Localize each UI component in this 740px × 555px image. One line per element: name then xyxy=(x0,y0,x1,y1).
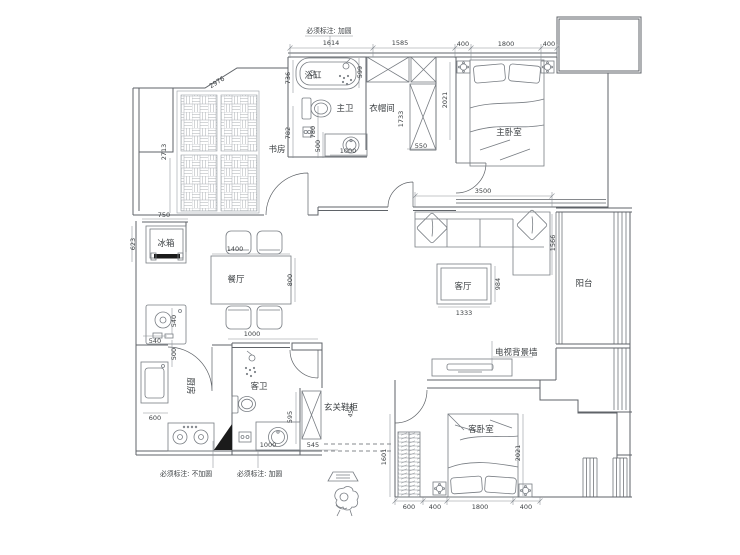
dim-1601: 1601 xyxy=(380,449,388,466)
ceiling-symbol-2 xyxy=(541,61,554,73)
label-living: 客厅 xyxy=(454,281,472,292)
note-bottom-left: 必须标注: 不加圆 xyxy=(160,469,212,478)
dim-1733: 1733 xyxy=(397,111,405,128)
dim-599: 599 xyxy=(356,66,364,78)
speckle-topright xyxy=(559,19,639,71)
dim-1000-b: 1000 xyxy=(244,330,261,338)
dim-984: 984 xyxy=(494,278,502,290)
dining-table xyxy=(211,231,291,329)
door-study xyxy=(266,173,308,215)
floor-plan-page: 1614 1585 400 1800 400 736 599 782 780 5… xyxy=(0,0,740,555)
dim-1800-b: 1800 xyxy=(472,503,489,511)
toilet-master xyxy=(302,98,331,119)
wall-guestbath-top xyxy=(232,343,290,348)
label-dining: 餐厅 xyxy=(227,275,245,285)
label-guest-bedroom: 客卧室 xyxy=(468,424,494,435)
master-bed xyxy=(470,60,544,166)
dim-550: 550 xyxy=(415,142,427,150)
shoe-cabinet xyxy=(302,391,321,439)
label-entry-cabinet: 玄关鞋柜 xyxy=(324,402,359,413)
dim-1566: 1566 xyxy=(549,235,557,252)
dim-400-b: 400 xyxy=(543,40,555,48)
dim-782: 782 xyxy=(284,127,292,139)
dim-540-a: 540 xyxy=(149,337,161,345)
stove xyxy=(168,423,214,451)
dim-623: 623 xyxy=(129,238,137,250)
dim-1800-a: 1800 xyxy=(498,40,515,48)
window-living-balcony xyxy=(556,212,562,344)
window-bay-2 xyxy=(613,458,627,497)
dim-3500: 3500 xyxy=(475,187,492,195)
sofa xyxy=(415,209,550,275)
door-guestbath xyxy=(290,350,318,378)
label-guest-bath: 客卫 xyxy=(250,381,268,392)
dim-545: 545 xyxy=(307,441,319,449)
dim-1333: 1333 xyxy=(456,309,473,317)
label-master-bedroom: 主卧室 xyxy=(496,127,522,138)
dim-1000-a: 1000 xyxy=(340,147,357,155)
dim-2021-b: 2021 xyxy=(514,445,522,462)
study-tiles xyxy=(177,91,259,213)
ceiling-symbol-1 xyxy=(457,61,470,73)
dim-540-b: 540 xyxy=(170,315,178,327)
ceiling-symbol-3 xyxy=(433,482,446,495)
label-fridge: 冰箱 xyxy=(157,238,175,249)
label-bathtub: 浴缸 xyxy=(304,70,322,81)
wall-tv xyxy=(427,380,540,388)
dim-1000-c: 1000 xyxy=(260,441,277,449)
wall-block xyxy=(292,343,322,350)
label-study: 书房 xyxy=(268,144,285,155)
dim-500-a: 500 xyxy=(314,140,322,152)
dim-595: 595 xyxy=(286,411,294,423)
label-master-bath: 主卫 xyxy=(336,103,354,114)
speckle-topleft xyxy=(139,88,173,152)
dim-2713: 2713 xyxy=(160,144,168,161)
corner-block-topright xyxy=(557,17,641,73)
label-tv-wall: 电视背景墙 xyxy=(495,347,538,358)
dim-750: 750 xyxy=(158,211,170,219)
dim-736: 736 xyxy=(284,72,292,84)
wall-top xyxy=(288,53,557,57)
shower-head-guest xyxy=(245,351,255,377)
floor-plan: 1614 1585 400 1800 400 736 599 782 780 5… xyxy=(0,0,740,555)
toilet-guest xyxy=(232,396,256,413)
label-balcony: 阳台 xyxy=(575,278,592,289)
door-hallway xyxy=(388,182,413,207)
note-bottom-mid: 必须标注: 加圆 xyxy=(237,469,282,478)
dim-1585: 1585 xyxy=(392,39,409,47)
entrance-sketch xyxy=(328,472,358,516)
room-labels: 书房 浴缸 主卫 衣帽间 主卧室 餐厅 客厅 阳台 厨房 客卫 玄关鞋柜 客卧室… xyxy=(157,26,592,478)
note-top: 必须标注: 加圆 xyxy=(306,26,351,35)
dim-800: 800 xyxy=(286,274,294,286)
walls xyxy=(133,17,641,497)
wall-bottom-kitchen xyxy=(136,451,322,455)
dim-780: 780 xyxy=(309,126,317,138)
dim-2021-a: 2021 xyxy=(441,92,449,109)
wall-study-left xyxy=(133,88,139,215)
kitchen-sink xyxy=(141,362,168,403)
tv-cabinet xyxy=(432,359,512,376)
dim-400-a: 400 xyxy=(457,40,469,48)
dim-1400: 1400 xyxy=(227,245,244,253)
corner-triangle xyxy=(214,424,232,450)
floor-drain xyxy=(239,432,251,442)
dim-600-a: 600 xyxy=(149,414,161,422)
dim-600-b: 600 xyxy=(403,503,415,511)
wall-closet-right xyxy=(410,57,436,150)
label-closet: 衣帽间 xyxy=(369,103,395,114)
window-bedroom xyxy=(456,200,606,204)
dim-1614: 1614 xyxy=(323,39,340,47)
door-guestbed xyxy=(395,390,427,423)
dim-400-d: 400 xyxy=(520,503,532,511)
dim-500-b: 500 xyxy=(170,348,178,360)
label-kitchen: 厨房 xyxy=(185,377,196,394)
ceiling-symbol-4 xyxy=(519,484,532,497)
window-bay-1 xyxy=(583,458,597,497)
window-balcony-glazing xyxy=(614,212,626,410)
dim-400-c: 400 xyxy=(429,503,441,511)
